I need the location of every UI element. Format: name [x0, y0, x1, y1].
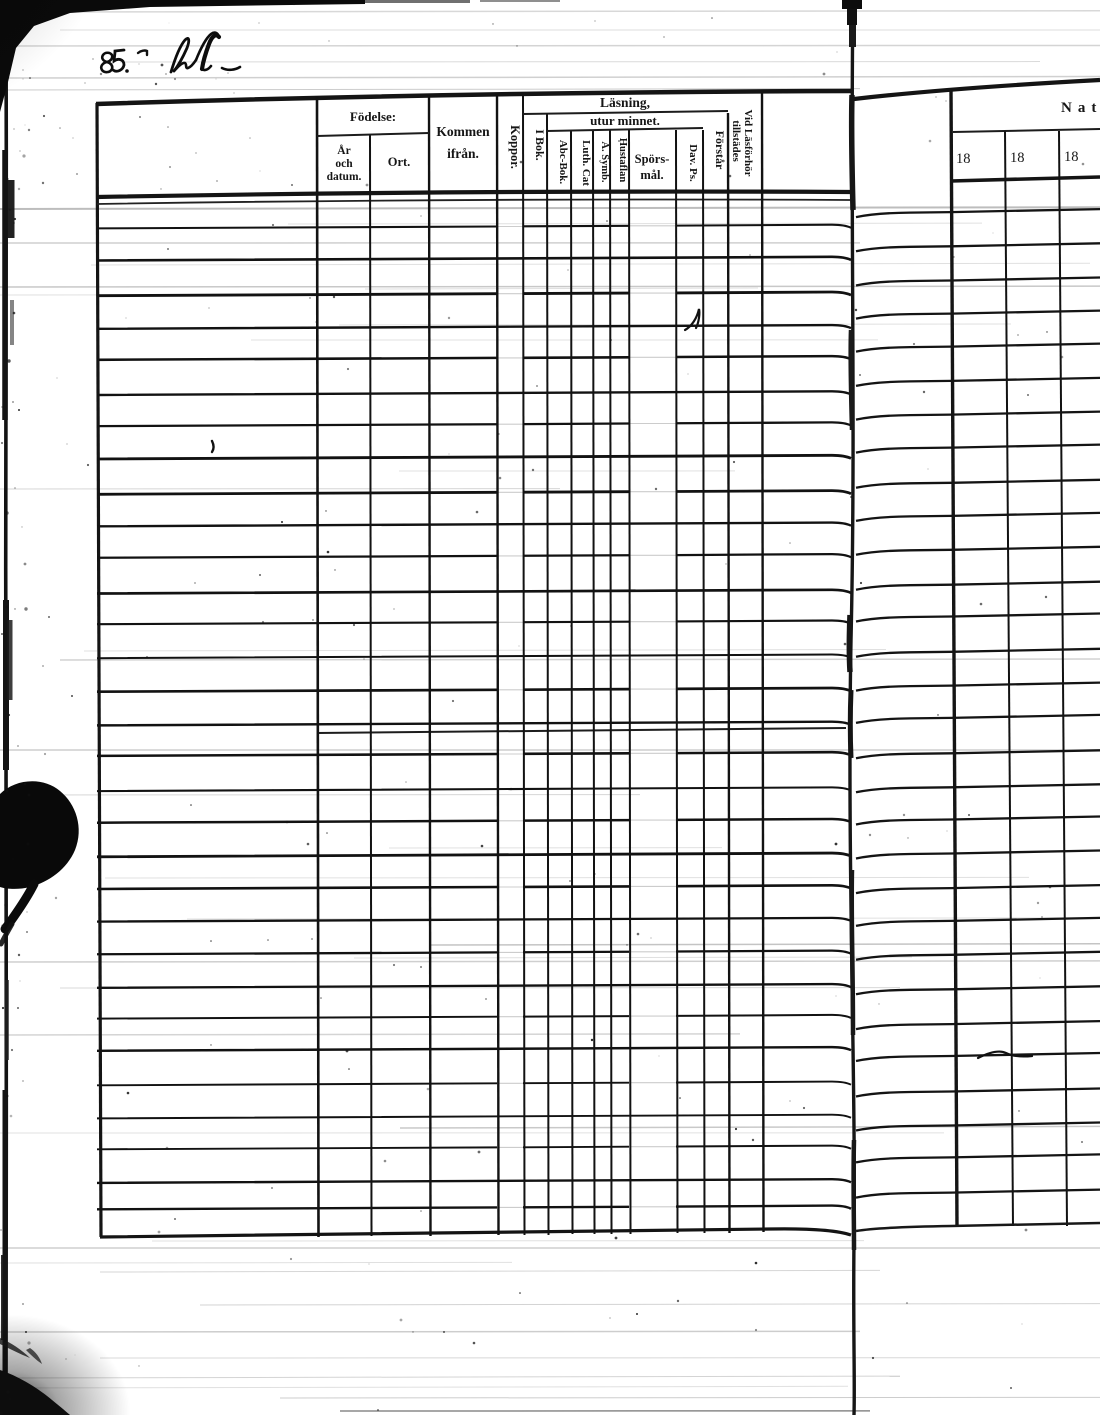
svg-text:Förstår: Förstår — [713, 131, 727, 170]
svg-text:A. Symb.: A. Symb. — [599, 141, 610, 183]
svg-text:Nat: Nat — [1061, 100, 1100, 116]
svg-text:Abc-Bok.: Abc-Bok. — [557, 140, 569, 185]
svg-text:År: År — [337, 143, 350, 157]
svg-text:I Bok.: I Bok. — [533, 129, 547, 160]
svg-text:Läsning,: Läsning, — [600, 95, 650, 110]
svg-text:Födelse:: Födelse: — [350, 109, 396, 124]
svg-text:Dav. Ps.: Dav. Ps. — [687, 144, 699, 182]
svg-text:18: 18 — [1010, 150, 1025, 166]
svg-text:Hustaflan: Hustaflan — [617, 138, 628, 183]
svg-text:mål.: mål. — [640, 168, 663, 182]
svg-text:Ort.: Ort. — [388, 155, 411, 169]
svg-text:ifrån.: ifrån. — [447, 146, 479, 161]
svg-text:18: 18 — [956, 151, 971, 167]
svg-text:och: och — [335, 158, 353, 170]
svg-text:18: 18 — [1064, 149, 1079, 165]
svg-text:Luth. Cat: Luth. Cat — [580, 140, 592, 186]
svg-text:utur minnet.: utur minnet. — [590, 113, 660, 128]
svg-text:tillstädes: tillstädes — [730, 120, 742, 162]
svg-text:Kommen: Kommen — [436, 124, 490, 139]
svg-text:datum.: datum. — [327, 171, 362, 183]
svg-text:Vid Läsförhör: Vid Läsförhör — [742, 109, 754, 176]
svg-text:Spörs-: Spörs- — [635, 152, 670, 166]
